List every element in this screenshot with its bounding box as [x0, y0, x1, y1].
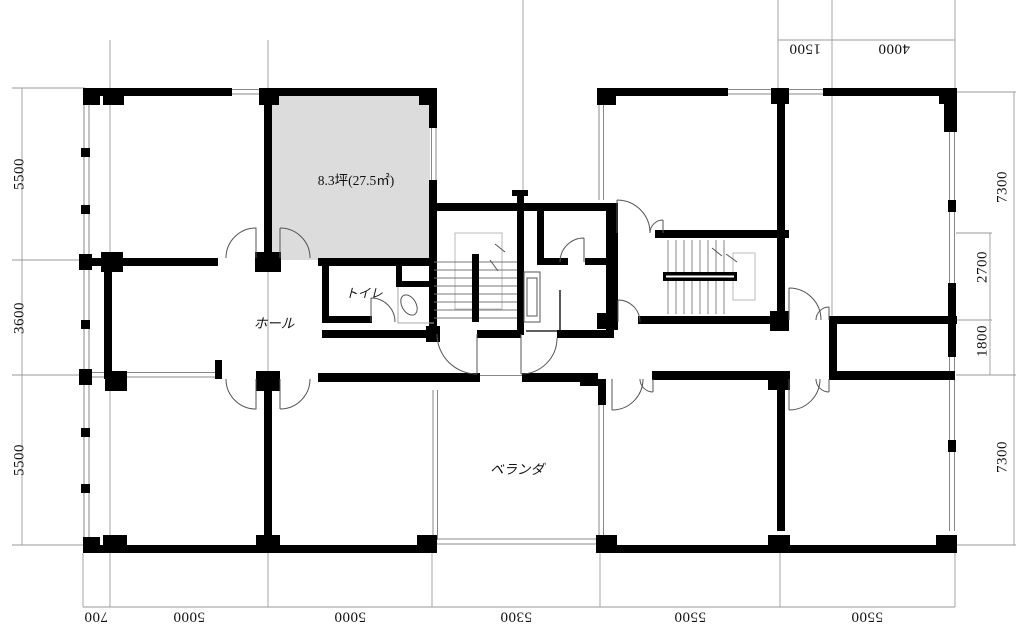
floor-plan-drawing: [0, 0, 1024, 628]
dim-top-1: 4000: [878, 40, 910, 57]
dim-right-inner-1: 1800: [975, 325, 992, 357]
dim-left-0: 5500: [12, 158, 29, 190]
dim-bottom-3: 5300: [500, 608, 532, 625]
dim-bottom-5: 5500: [851, 608, 883, 625]
dim-left-1: 3600: [12, 302, 29, 334]
dim-left-2: 5500: [12, 444, 29, 476]
dim-right-outer-1: 7300: [995, 441, 1012, 473]
room-label-veranda: ベランダ: [490, 458, 544, 478]
dim-top-0: 1500: [789, 40, 821, 57]
dim-bottom-2: 5000: [334, 608, 366, 625]
elevator: [524, 272, 560, 331]
dim-bottom-4: 5500: [674, 608, 706, 625]
dim-right-outer-0: 7300: [995, 171, 1012, 203]
walls: [83, 88, 957, 553]
stairs-central: [434, 233, 517, 322]
toilet-fixture: [397, 287, 434, 323]
room-label-toilet: トイレ: [345, 283, 383, 302]
room-label-hall: ホール: [254, 312, 295, 332]
dim-bottom-0: 700: [84, 608, 108, 625]
floor-plan-page: 8.3坪(27.5㎡) トイレ ホール ベランダ 5500 3600 5500 …: [0, 0, 1024, 628]
dim-right-inner-0: 2700: [975, 251, 992, 283]
room-label-unit-area: 8.3坪(27.5㎡): [318, 169, 395, 189]
dim-bottom-1: 5000: [173, 608, 205, 625]
stairs-right: [663, 240, 755, 314]
